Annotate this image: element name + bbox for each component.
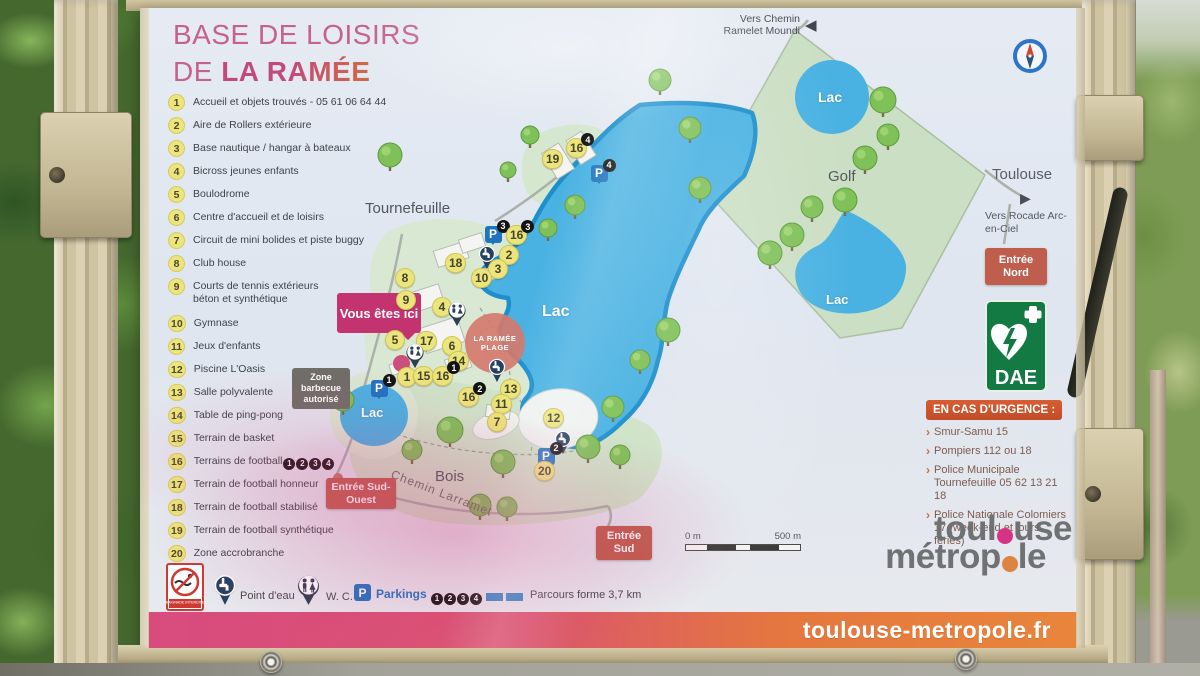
legend-label: Accueil et objets trouvés - 05 61 06 64 …	[193, 94, 386, 109]
title-line2: DE LA RAMÉE	[173, 53, 420, 90]
legend-number: 12	[168, 361, 186, 378]
background-tree-trunk	[1150, 370, 1166, 676]
map-marker-7: 7	[487, 412, 507, 432]
legend-label: Gymnase	[194, 315, 239, 330]
arrow-right-icon: ▶	[1020, 190, 1031, 207]
legend-label: Terrain de football synthétique	[194, 522, 334, 537]
legend-number: 13	[168, 384, 186, 401]
parking-number-badge: 1	[431, 593, 443, 605]
wc-label: W. C.	[326, 591, 353, 603]
marker-number-badge: 2	[550, 442, 563, 455]
website-url: toulouse-metropole.fr	[803, 617, 1051, 644]
football-field-badge: 3	[309, 458, 321, 470]
legend-item-14: 14Table de ping-pong	[168, 407, 413, 430]
emergency-line: ›Smur-Samu 15	[926, 426, 1072, 439]
wc-map-pin-icon	[446, 300, 468, 332]
legend-number: 20	[168, 545, 186, 562]
map-label-golf: Golf	[828, 168, 856, 185]
legend-label: Terrain de basket	[194, 430, 275, 445]
football-field-badge: 4	[322, 458, 334, 470]
marker-number-badge: 4	[603, 159, 616, 172]
map-label-to-chemin: Vers Chemin Ramelet Moundi	[708, 13, 800, 37]
frame-clamp-right-bottom	[1076, 428, 1144, 560]
legend-item-7: 7Circuit de mini bolides et piste buggy	[168, 232, 413, 255]
map-marker-18: 18	[445, 253, 466, 273]
legend-item-3: 3Base nautique / hangar à bateaux	[168, 140, 413, 163]
legend-item-6: 6Centre d'accueil et de loisirs	[168, 209, 413, 232]
map-marker-16: 163	[506, 225, 527, 245]
map-marker-11: 11	[491, 394, 512, 414]
water-point-pin-icon	[212, 574, 238, 611]
emergency-text: Pompiers 112 ou 18	[934, 445, 1032, 458]
map-marker-19: 19	[542, 149, 563, 169]
legend-label: Bicross jeunes enfants	[193, 163, 299, 178]
legend-label: Terrain de football stabilisé	[194, 499, 318, 514]
legend-list: 1Accueil et objets trouvés - 05 61 06 64…	[168, 94, 413, 568]
legend-label: Boulodrome	[193, 186, 250, 201]
chevron-icon: ›	[926, 426, 930, 439]
legend-item-11: 11Jeux d'enfants	[168, 338, 413, 361]
legend-number: 18	[168, 499, 186, 516]
emergency-text: Smur-Samu 15	[934, 426, 1008, 439]
dae-text: DAE	[995, 367, 1037, 389]
no-swimming-icon: BAIGNADE INTERDITE	[166, 563, 204, 616]
compass-icon	[1012, 38, 1048, 79]
legend-label: Piscine L'Oasis	[194, 361, 265, 376]
park-map-sign: Tournefeuille Golf Lac Lac Lac Lac Bois …	[140, 8, 1085, 648]
emergency-text: Police Municipale Tournefeuille 05 62 13…	[934, 464, 1072, 503]
scale-left-label: 0 m	[685, 531, 701, 542]
pavement	[0, 663, 1200, 676]
map-label-toulouse: Toulouse	[992, 166, 1052, 183]
parking-number-badge: 2	[444, 593, 456, 605]
map-marker-16: 162	[458, 387, 479, 407]
legend-item-8: 8Club house	[168, 255, 413, 278]
marker-number-badge: 1	[383, 374, 396, 387]
legend-item-17: 17Terrain de football honneur	[168, 476, 413, 499]
map-marker-12: 12	[543, 408, 564, 428]
legend-item-2: 2Aire de Rollers extérieure	[168, 117, 413, 140]
legend-number: 3	[168, 140, 185, 157]
legend-item-1: 1Accueil et objets trouvés - 05 61 06 64…	[168, 94, 413, 117]
football-field-badge: 2	[296, 458, 308, 470]
legend-label: Base nautique / hangar à bateaux	[193, 140, 351, 155]
toulouse-metropole-logo: touluse métrople	[780, 512, 1072, 573]
sign-right-edge	[1076, 8, 1085, 648]
legend-item-19: 19Terrain de football synthétique	[168, 522, 413, 545]
legend-label: Aire de Rollers extérieure	[193, 117, 311, 132]
trail-line-icon	[486, 588, 526, 606]
legend-number: 9	[168, 278, 185, 295]
legend-number: 17	[168, 476, 186, 493]
legend-label: Circuit de mini bolides et piste buggy	[193, 232, 364, 247]
legend-item-4: 4Bicross jeunes enfants	[168, 163, 413, 186]
water-point-label: Point d'eau	[240, 590, 295, 602]
legend-number: 10	[168, 315, 186, 332]
arrow-left-icon: ◀	[805, 16, 817, 34]
legend-number: 8	[168, 255, 185, 272]
map-marker-20: 20	[534, 461, 555, 481]
emergency-header: EN CAS D'URGENCE :	[926, 400, 1062, 420]
map-label-woods: Bois	[435, 468, 464, 485]
legend-number: 1	[168, 94, 185, 111]
legend-number: 2	[168, 117, 185, 134]
legend-label: Centre d'accueil et de loisirs	[193, 209, 324, 224]
trail-label: Parcours forme 3,7 km	[530, 589, 641, 601]
legend-label: Club house	[193, 255, 246, 270]
parking-number-badge: 3	[457, 593, 469, 605]
entrance-north-badge: Entrée Nord	[985, 248, 1047, 285]
title-line1: BASE DE LOISIRS	[173, 16, 420, 53]
sign-title: BASE DE LOISIRS DE LA RAMÉE	[173, 16, 420, 90]
water-point-map-pin-icon	[487, 358, 507, 388]
emergency-line: ›Pompiers 112 ou 18	[926, 445, 1072, 458]
legend-item-16: 16Terrains de football1234	[168, 453, 413, 476]
map-marker-8: 8	[395, 268, 415, 288]
map-marker-5: 5	[385, 330, 405, 350]
map-marker-10: 10	[471, 268, 492, 288]
legend-number: 14	[168, 407, 186, 424]
website-banner: toulouse-metropole.fr	[148, 612, 1077, 648]
legend-number: 5	[168, 186, 185, 203]
legend-item-5: 5Boulodrome	[168, 186, 413, 209]
map-marker-16: 161	[432, 366, 453, 386]
map-marker-16: 164	[566, 138, 587, 158]
chevron-icon: ›	[926, 464, 930, 503]
sign-left-edge	[140, 8, 149, 648]
legend-number: 6	[168, 209, 185, 226]
parking-number-badges: 1234	[430, 586, 482, 605]
map-marker-9: 9	[396, 290, 416, 310]
parking-map-icon: P1	[371, 380, 388, 397]
legend-number: 16	[168, 453, 186, 470]
entrance-south-badge: Entrée Sud	[596, 526, 652, 560]
map-label-lake-main: Lac	[542, 303, 570, 321]
wc-pin-icon	[295, 573, 322, 611]
frame-clamp-right-top	[1076, 95, 1144, 161]
logo-ring-orange	[1002, 556, 1018, 572]
chevron-icon: ›	[926, 445, 930, 458]
parkings-label: Parkings	[376, 587, 427, 601]
frame-clamp-left	[40, 112, 132, 238]
legend-item-10: 10Gymnase	[168, 315, 413, 338]
frame-bolt-left	[260, 651, 282, 673]
legend-label: Salle polyvalente	[194, 384, 273, 399]
emergency-line: ›Police Municipale Tournefeuille 05 62 1…	[926, 464, 1072, 503]
legend-number: 7	[168, 232, 185, 249]
legend-number: 19	[168, 522, 186, 539]
parking-map-icon: P3	[485, 226, 502, 243]
defibrillator-dae-icon: DAE	[985, 300, 1047, 397]
legend-number: 11	[168, 338, 185, 355]
legend-label: Zone accrobranche	[194, 545, 284, 560]
legend-label: Courts de tennis extérieurs béton et syn…	[193, 278, 318, 305]
legend-item-15: 15Terrain de basket	[168, 430, 413, 453]
parking-icon: P	[354, 584, 371, 601]
parking-number-badge: 4	[470, 593, 482, 605]
parking-map-icon: P4	[591, 165, 608, 182]
svg-text:BAIGNADE INTERDITE: BAIGNADE INTERDITE	[166, 601, 204, 605]
legend-label: Terrain de football honneur	[194, 476, 319, 491]
legend-item-20: 20Zone accrobranche	[168, 545, 413, 568]
legend-label: Table de ping-pong	[194, 407, 283, 422]
legend-label: Jeux d'enfants	[193, 338, 260, 353]
map-label-to-rocade: Vers Rocade Arc-en-Ciel	[985, 210, 1080, 236]
legend-item-9: 9Courts de tennis extérieurs béton et sy…	[168, 278, 413, 315]
frame-post-left	[54, 0, 118, 676]
map-label-lake-golf-bottom: Lac	[826, 292, 848, 307]
legend-number: 4	[168, 163, 185, 180]
legend-number: 15	[168, 430, 186, 447]
legend-label: Terrains de football1234	[194, 453, 335, 470]
legend-item-18: 18Terrain de football stabilisé	[168, 499, 413, 522]
football-field-badge: 1	[283, 458, 295, 470]
photo-scene: Tournefeuille Golf Lac Lac Lac Lac Bois …	[0, 0, 1200, 676]
map-label-lake-golf-top: Lac	[818, 89, 842, 105]
frame-bolt-right	[955, 648, 977, 670]
